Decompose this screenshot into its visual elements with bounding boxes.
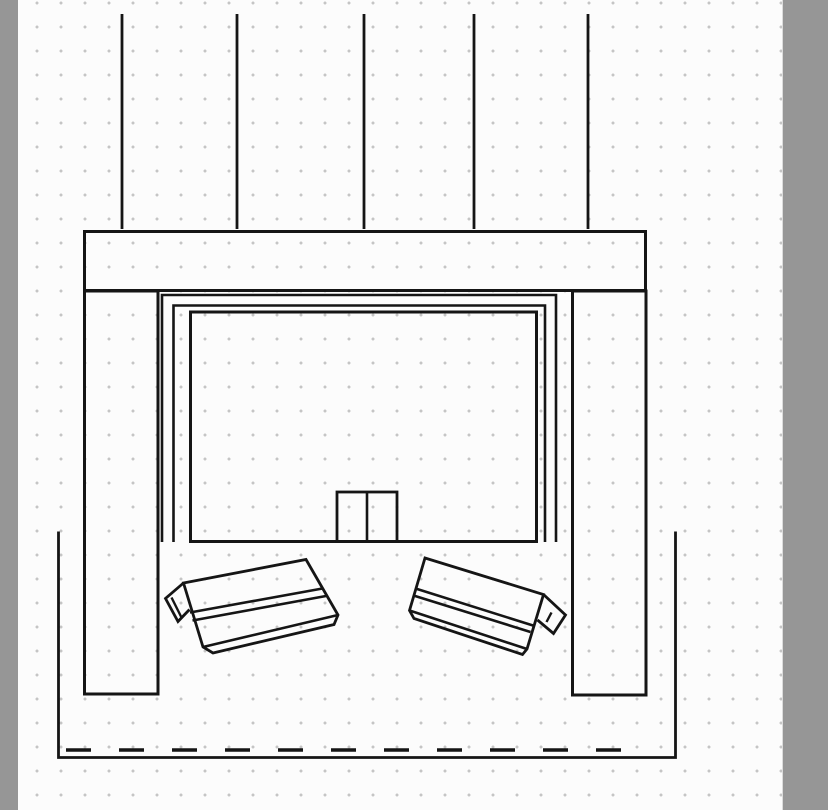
pit-outline[interactable] — [59, 532, 676, 758]
pasteboard-right — [782, 0, 828, 810]
left-column[interactable] — [85, 291, 159, 694]
screen-panel[interactable] — [191, 312, 537, 542]
pasteboard-left — [0, 0, 18, 810]
left-wedge-outline[interactable] — [184, 560, 339, 654]
right-wedge-divider-a[interactable] — [416, 589, 534, 626]
left-wedge-lip[interactable] — [203, 615, 338, 647]
drawing-sheet[interactable] — [18, 0, 782, 810]
right-column[interactable] — [573, 291, 647, 695]
right-wedge-outline[interactable] — [410, 558, 544, 655]
header-beam[interactable] — [85, 232, 646, 291]
drafting-app-viewport: { "workspace": { "pasteboard_color": "#9… — [0, 0, 828, 810]
screen-housing-inner[interactable] — [174, 306, 546, 543]
screen-housing-outer[interactable] — [162, 295, 556, 542]
drawing-canvas[interactable] — [18, 0, 782, 810]
right-wedge-divider-b[interactable] — [414, 596, 531, 633]
right-wedge-lip[interactable] — [410, 611, 528, 650]
right-wedge-flap-inner[interactable] — [547, 613, 552, 623]
